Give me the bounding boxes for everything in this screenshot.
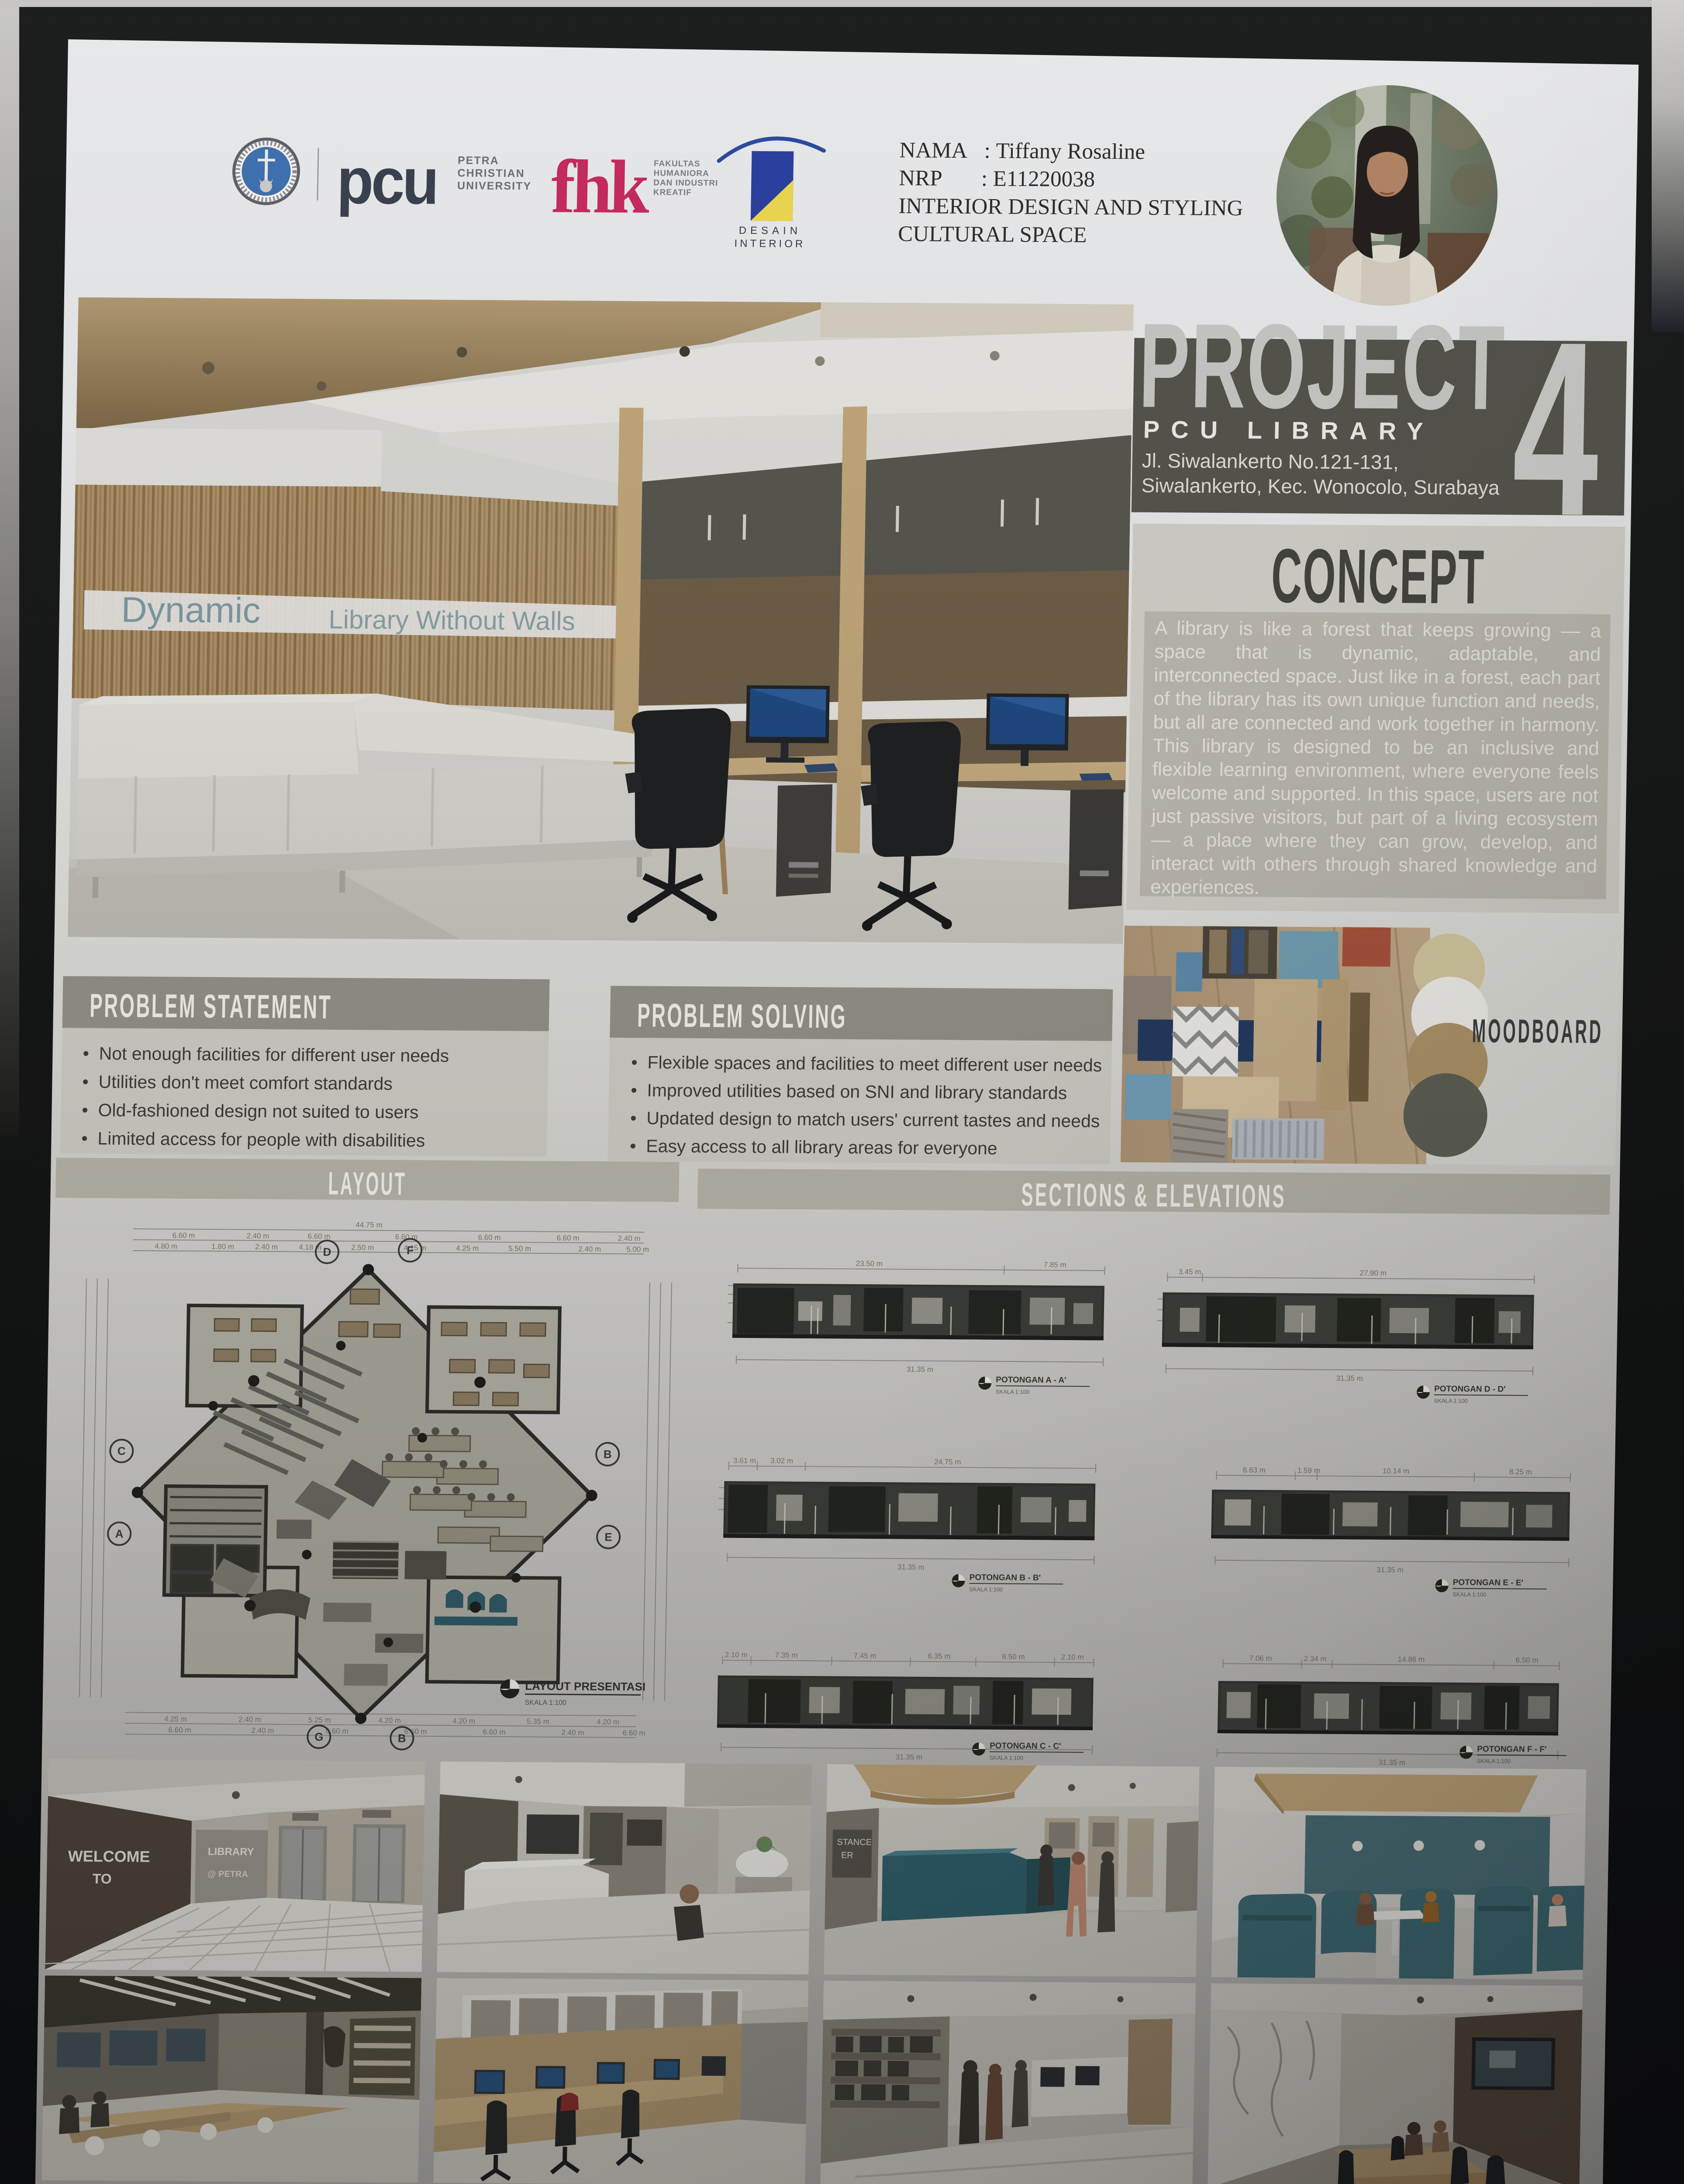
svg-text:6.60 m: 6.60 m <box>556 1234 579 1242</box>
svg-text:6.60 m: 6.60 m <box>622 1729 645 1737</box>
svg-text:6.60 m: 6.60 m <box>307 1232 330 1241</box>
svg-text:2.40 m: 2.40 m <box>618 1234 640 1243</box>
svg-text:INTERIOR: INTERIOR <box>734 238 805 250</box>
svg-text:31.35 m: 31.35 m <box>906 1365 933 1373</box>
svg-text:2.40 m: 2.40 m <box>255 1243 278 1251</box>
svg-text:6.60 m: 6.60 m <box>172 1231 195 1240</box>
svg-text:1.59 m: 1.59 m <box>1298 1466 1320 1475</box>
svg-text:4.25 m: 4.25 m <box>456 1244 479 1252</box>
svg-text:G: G <box>314 1730 324 1743</box>
svg-text:SKALA 1:100: SKALA 1:100 <box>969 1586 1003 1593</box>
svg-text:8.25 m: 8.25 m <box>1509 1468 1532 1476</box>
svg-text:14.86 m: 14.86 m <box>1398 1655 1425 1663</box>
svg-text:27.90 m: 27.90 m <box>1360 1269 1387 1277</box>
svg-text:SKALA 1:100: SKALA 1:100 <box>996 1389 1030 1395</box>
svg-text:6.60 m: 6.60 m <box>478 1233 500 1241</box>
svg-text:WELCOME: WELCOME <box>68 1847 150 1866</box>
svg-text:B: B <box>398 1731 406 1745</box>
svg-text:44.75 m: 44.75 m <box>355 1221 383 1229</box>
svg-text:TO: TO <box>93 1871 112 1887</box>
svg-text:6.50 m: 6.50 m <box>1515 1656 1538 1664</box>
svg-text:5.35 m: 5.35 m <box>527 1717 549 1725</box>
svg-text:2.10 m: 2.10 m <box>1061 1653 1084 1661</box>
svg-text:6.50 m: 6.50 m <box>1002 1652 1025 1661</box>
svg-text:SKALA 1:100: SKALA 1:100 <box>1453 1591 1487 1597</box>
svg-text:6.60 m: 6.60 m <box>168 1726 191 1734</box>
svg-text:ER: ER <box>841 1851 853 1860</box>
svg-text:POTONGAN B - B': POTONGAN B - B' <box>969 1573 1041 1583</box>
svg-text:24.75 m: 24.75 m <box>934 1458 961 1466</box>
svg-text:POTONGAN E - E': POTONGAN E - E' <box>1453 1578 1523 1587</box>
svg-text:POTONGAN A - A': POTONGAN A - A' <box>996 1375 1066 1385</box>
svg-text:SKALA 1:100: SKALA 1:100 <box>1477 1758 1511 1764</box>
svg-text:7.35 m: 7.35 m <box>775 1651 797 1659</box>
svg-text:6.35 m: 6.35 m <box>928 1652 950 1660</box>
svg-text:4.80 m: 4.80 m <box>155 1242 177 1250</box>
svg-text:3.45 m: 3.45 m <box>1178 1268 1201 1276</box>
svg-text:2.40 m: 2.40 m <box>238 1715 261 1724</box>
svg-text:@ PETRA: @ PETRA <box>207 1870 248 1880</box>
svg-text:7.85 m: 7.85 m <box>1044 1261 1066 1269</box>
svg-text:3.61 m: 3.61 m <box>733 1456 756 1465</box>
svg-text:2.40 m: 2.40 m <box>246 1232 269 1240</box>
svg-text:SKALA 1:100: SKALA 1:100 <box>1434 1397 1468 1404</box>
svg-text:2.40 m: 2.40 m <box>561 1728 584 1737</box>
svg-text:2.34 m: 2.34 m <box>1304 1655 1326 1663</box>
svg-text:4.20 m: 4.20 m <box>378 1716 401 1724</box>
svg-text:LIBRARY: LIBRARY <box>208 1846 254 1858</box>
svg-text:31.35 m: 31.35 m <box>1336 1374 1363 1382</box>
svg-text:7.06 m: 7.06 m <box>1249 1654 1272 1662</box>
svg-text:1.80 m: 1.80 m <box>211 1242 234 1251</box>
svg-text:31.35 m: 31.35 m <box>896 1753 923 1761</box>
svg-text:POTONGAN C - C': POTONGAN C - C' <box>990 1741 1061 1751</box>
svg-text:POTONGAN F - F': POTONGAN F - F' <box>1477 1745 1547 1754</box>
svg-text:LAYOUT PRESENTASI: LAYOUT PRESENTASI <box>525 1679 645 1693</box>
svg-text:D: D <box>323 1245 331 1258</box>
svg-text:31.35 m: 31.35 m <box>1377 1565 1404 1574</box>
svg-text:2.40 m: 2.40 m <box>251 1726 274 1735</box>
svg-text:A: A <box>115 1527 124 1540</box>
svg-text:31.35 m: 31.35 m <box>1379 1758 1406 1766</box>
svg-text:2.50 m: 2.50 m <box>351 1243 374 1251</box>
svg-text:2.10 m: 2.10 m <box>725 1651 747 1659</box>
svg-text:POTONGAN D - D': POTONGAN D - D' <box>1434 1384 1506 1394</box>
svg-text:4.25 m: 4.25 m <box>164 1715 187 1723</box>
svg-text:5.50 m: 5.50 m <box>508 1244 531 1253</box>
svg-text:STANCE: STANCE <box>837 1838 872 1848</box>
svg-text:10.14 m: 10.14 m <box>1383 1467 1410 1475</box>
svg-text:DESAIN: DESAIN <box>738 225 801 237</box>
svg-text:SKALA 1:100: SKALA 1:100 <box>525 1699 567 1707</box>
svg-text:31.35 m: 31.35 m <box>897 1563 925 1571</box>
svg-text:B: B <box>604 1448 612 1461</box>
svg-text:5.25 m: 5.25 m <box>308 1716 331 1724</box>
svg-text:2.40 m: 2.40 m <box>578 1245 601 1253</box>
svg-text:F: F <box>407 1244 414 1257</box>
svg-text:6.60 m: 6.60 m <box>483 1728 505 1736</box>
svg-text:7.45 m: 7.45 m <box>853 1652 876 1660</box>
svg-text:4.20 m: 4.20 m <box>597 1718 619 1726</box>
svg-text:23.50 m: 23.50 m <box>856 1259 883 1268</box>
svg-text:4.20 m: 4.20 m <box>452 1717 475 1725</box>
svg-text:MOODBOARD: MOODBOARD <box>1472 1013 1603 1051</box>
svg-text:SKALA 1:100: SKALA 1:100 <box>990 1754 1024 1761</box>
svg-text:5.00 m: 5.00 m <box>626 1245 649 1254</box>
svg-text:3.02 m: 3.02 m <box>770 1457 793 1465</box>
svg-text:C: C <box>117 1444 126 1458</box>
svg-text:E: E <box>604 1531 612 1544</box>
svg-text:6.63 m: 6.63 m <box>1243 1466 1266 1474</box>
